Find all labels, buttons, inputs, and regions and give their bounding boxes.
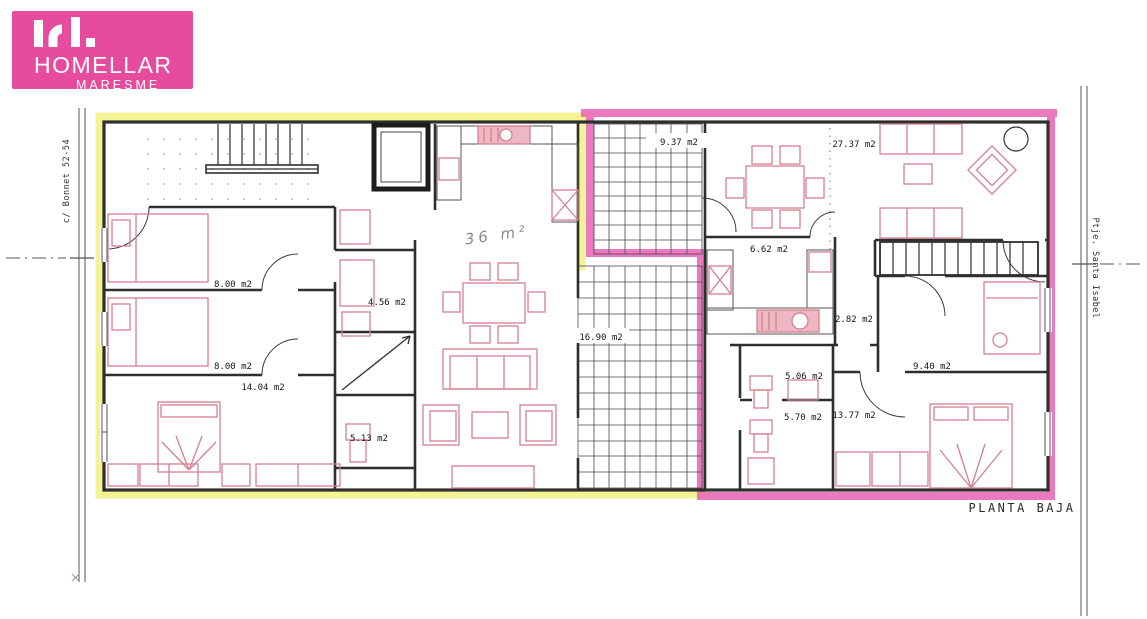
label-patio-bottom: 16.90 m2	[579, 333, 622, 343]
kitchen-right-appliances	[709, 252, 831, 332]
label-bath-right-bottom: 5.70 m2	[784, 413, 822, 423]
label-bedroom-left-top: 8.00 m2	[214, 280, 252, 290]
hall-closet	[340, 210, 370, 244]
windows	[100, 228, 1052, 462]
street-line-left	[6, 108, 94, 582]
plan-caption: PLANTA BAJA	[969, 501, 1076, 515]
wardrobes-right	[836, 452, 928, 486]
label-bedroom-right-bottom: 13.77 m2	[832, 411, 875, 421]
label-bedroom-left-bottom: 14.04 m2	[241, 383, 284, 393]
floor-plan-drawing: 8.00 m2 8.00 m2 14.04 m2 4.56 m2 5.13 m2…	[0, 0, 1147, 619]
label-kitchen-right: 6.62 m2	[750, 245, 788, 255]
bath-fixtures-right	[748, 376, 818, 484]
coffee-table-left	[472, 412, 508, 438]
hall-dotted-texture	[140, 130, 315, 202]
floor-plan-page: HOMELLAR MARESME	[0, 0, 1147, 619]
tv-unit-left	[452, 466, 534, 488]
label-bedroom-right-mid: 9.40 m2	[913, 362, 951, 372]
label-living-handwritten: 36 m²	[464, 222, 530, 249]
elevator-shaft	[374, 125, 428, 189]
label-bedroom-left-mid: 8.00 m2	[214, 362, 252, 372]
label-bathroom-left: 5.13 m2	[350, 434, 388, 444]
bed-left-mid	[108, 298, 208, 366]
corner-mark	[72, 574, 79, 581]
wardrobes-left	[108, 464, 340, 486]
label-bath-right-top: 5.06 m2	[785, 372, 823, 382]
dining-table-left	[443, 263, 545, 343]
street-name-left: c/ Bonnet 52-54	[62, 139, 72, 223]
label-patio-top: 9.37 m2	[660, 138, 698, 148]
bed-right-bottom	[930, 404, 1012, 488]
label-living-right: 27.37 m2	[832, 140, 875, 150]
bed-left-top	[108, 214, 208, 282]
label-room-456: 4.56 m2	[368, 298, 406, 308]
kitchen-left-appliances	[439, 126, 578, 220]
bed-left-bottom	[158, 402, 220, 472]
bed-right-mid	[984, 282, 1040, 354]
armchairs-left	[423, 405, 556, 445]
understairs-diagonal	[342, 336, 410, 390]
round-table	[1004, 127, 1028, 151]
dining-table-right	[726, 146, 824, 228]
label-hall-right: 2.82 m2	[835, 315, 873, 325]
sofa-left	[443, 349, 537, 389]
sofas-right	[880, 124, 962, 238]
coffee-table-right	[904, 164, 932, 184]
patio-bottom-tiles	[578, 266, 702, 488]
street-line-right	[1072, 86, 1142, 616]
stairs-right	[880, 242, 1038, 275]
street-name-right: Ptje. Santa Isabel	[1090, 217, 1100, 318]
right-apartment-outline	[585, 113, 1053, 496]
armchair-right	[968, 146, 1016, 194]
